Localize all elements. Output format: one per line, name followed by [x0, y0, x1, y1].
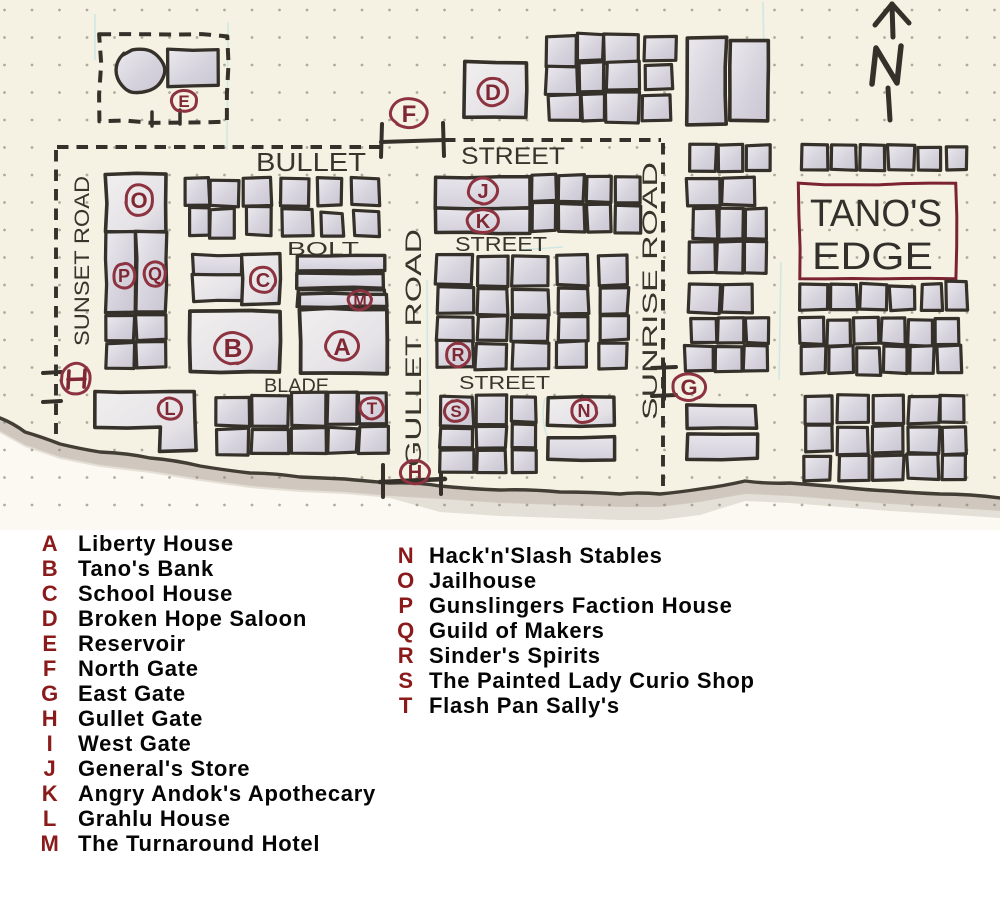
svg-text:D: D	[42, 606, 59, 631]
svg-text:Flash Pan Sally's: Flash Pan Sally's	[429, 693, 620, 718]
svg-text:Hack'n'Slash Stables: Hack'n'Slash Stables	[429, 543, 663, 568]
svg-text:Guild of Makers: Guild of Makers	[429, 618, 605, 643]
svg-text:R: R	[398, 643, 415, 668]
svg-text:J: J	[44, 756, 57, 781]
svg-text:GULLET ROAD: GULLET ROAD	[401, 229, 426, 467]
svg-text:S: S	[398, 668, 413, 693]
svg-text:STREET: STREET	[461, 143, 565, 170]
svg-text:E: E	[42, 631, 57, 656]
svg-text:School House: School House	[78, 581, 233, 606]
svg-text:G: G	[41, 681, 59, 706]
svg-text:General's Store: General's Store	[78, 756, 250, 781]
svg-text:N: N	[578, 401, 591, 421]
svg-text:Jailhouse: Jailhouse	[429, 568, 537, 593]
svg-text:T: T	[399, 693, 413, 718]
svg-text:STREET: STREET	[455, 234, 547, 256]
svg-text:BLADE: BLADE	[264, 376, 329, 397]
svg-text:C: C	[256, 270, 270, 292]
svg-text:D: D	[485, 80, 501, 105]
svg-text:A: A	[42, 531, 59, 556]
svg-text:T: T	[367, 399, 378, 418]
svg-text:E: E	[178, 92, 189, 111]
svg-text:Grahlu House: Grahlu House	[78, 806, 231, 831]
svg-text:Reservoir: Reservoir	[78, 631, 186, 656]
svg-text:B: B	[42, 556, 59, 581]
svg-text:Tano's Bank: Tano's Bank	[78, 556, 214, 581]
svg-text:EDGE: EDGE	[812, 236, 933, 278]
svg-text:R: R	[452, 345, 465, 365]
svg-text:Sinder's Spirits: Sinder's Spirits	[429, 643, 601, 668]
svg-text:O: O	[397, 568, 415, 593]
svg-text:H: H	[408, 462, 422, 484]
svg-text:P: P	[118, 266, 130, 286]
svg-text:L: L	[165, 399, 176, 419]
svg-text:L: L	[43, 806, 57, 831]
svg-text:TANO'S: TANO'S	[810, 193, 942, 235]
svg-text:Gunslingers Faction House: Gunslingers Faction House	[429, 593, 733, 618]
svg-text:Gullet Gate: Gullet Gate	[78, 706, 203, 731]
svg-text:C: C	[42, 581, 59, 606]
svg-text:I: I	[47, 731, 54, 756]
svg-text:N: N	[398, 543, 415, 568]
svg-text:A: A	[333, 334, 350, 361]
svg-text:G: G	[680, 375, 697, 400]
svg-text:B: B	[224, 333, 243, 363]
svg-text:K: K	[476, 211, 491, 233]
svg-text:O: O	[130, 188, 147, 213]
svg-text:M: M	[40, 831, 59, 856]
svg-text:STREET: STREET	[459, 373, 550, 393]
svg-text:Broken Hope Saloon: Broken Hope Saloon	[78, 606, 307, 631]
svg-text:Angry Andok's Apothecary: Angry Andok's Apothecary	[78, 781, 376, 806]
svg-text:BULLET: BULLET	[256, 147, 366, 177]
svg-text:M: M	[353, 293, 366, 310]
svg-text:East Gate: East Gate	[78, 681, 186, 706]
svg-text:The Painted Lady Curio Shop: The Painted Lady Curio Shop	[429, 668, 755, 693]
svg-text:S: S	[450, 402, 461, 421]
svg-text:P: P	[398, 593, 413, 618]
svg-text:H: H	[42, 706, 59, 731]
svg-text:Q: Q	[397, 618, 415, 643]
svg-text:West Gate: West Gate	[78, 731, 192, 756]
svg-text:Liberty House: Liberty House	[78, 531, 234, 556]
svg-text:The Turnaround Hotel: The Turnaround Hotel	[78, 831, 320, 856]
svg-text:SUNRISE ROAD: SUNRISE ROAD	[639, 162, 662, 420]
svg-text:F: F	[402, 101, 417, 128]
svg-text:F: F	[43, 656, 57, 681]
svg-text:J: J	[477, 181, 488, 203]
svg-text:K: K	[42, 781, 59, 806]
svg-text:BOLT: BOLT	[287, 239, 359, 259]
svg-text:North Gate: North Gate	[78, 656, 199, 681]
svg-text:Q: Q	[148, 264, 162, 284]
svg-text:SUNSET ROAD: SUNSET ROAD	[71, 176, 94, 346]
